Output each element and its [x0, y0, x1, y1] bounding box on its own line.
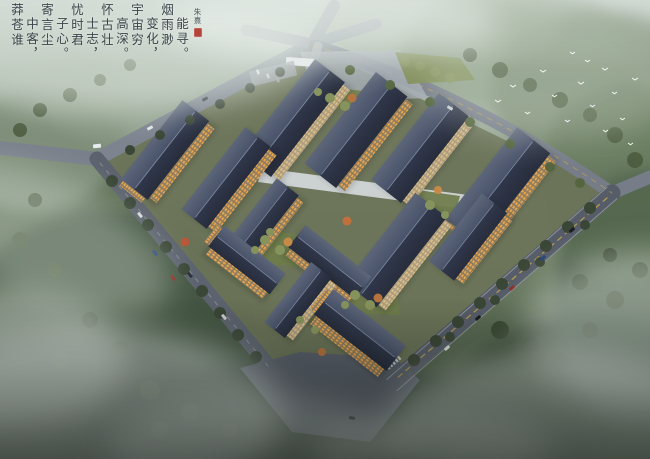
- calligraphy-signature: 朱熹: [192, 3, 203, 37]
- calligraphy-poem: 朱熹 能寻。 烟雨渺 变化， 宇宙穷 高深。 怀古壮 士志， 忧时君 子心。 寄…: [10, 3, 203, 62]
- seal-stamp-icon: [194, 28, 202, 37]
- poem-column: 怀古壮: [100, 3, 113, 48]
- aerial-rendering: [0, 0, 650, 459]
- poem-column: 中客，: [25, 3, 38, 62]
- poem-column: 烟雨渺: [160, 3, 173, 48]
- poem-column: 宇宙穷: [130, 3, 143, 48]
- bottom-vignette: [0, 299, 650, 459]
- poem-column: 能寻。: [175, 3, 188, 62]
- poem-column: 子心。: [55, 3, 68, 62]
- poem-column: 高深。: [115, 3, 128, 62]
- poem-column: 士志，: [85, 3, 98, 62]
- poem-column: 莽苍谁: [10, 3, 23, 48]
- poem-column: 忧时君: [70, 3, 83, 48]
- poem-column: 变化，: [145, 3, 158, 62]
- aerial-rendering-scene: 朱熹 能寻。 烟雨渺 变化， 宇宙穷 高深。 怀古壮 士志， 忧时君 子心。 寄…: [0, 0, 650, 459]
- bus: [93, 144, 101, 149]
- poem-column: 寄言尘: [40, 3, 53, 48]
- signature-text: 朱熹: [192, 8, 203, 25]
